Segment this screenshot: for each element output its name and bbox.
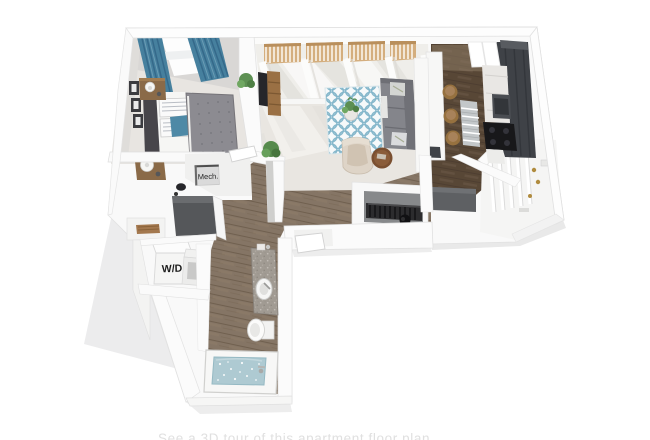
svg-text:See a 3D tour of this apartmen: See a 3D tour of this apartment floor pl… <box>158 431 430 440</box>
svg-text:Mech.: Mech. <box>198 172 219 182</box>
svg-text:W/D: W/D <box>162 263 183 276</box>
